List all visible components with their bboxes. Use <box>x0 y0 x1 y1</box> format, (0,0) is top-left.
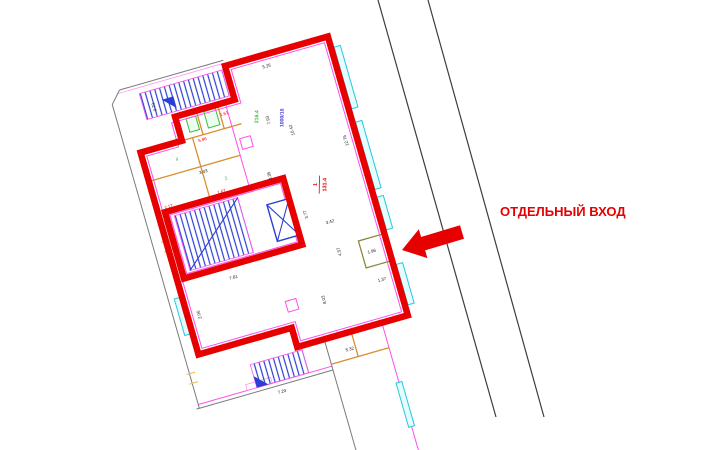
building-plan: 5.25 7.93 10.42 12.76 5.86 3.03 2.17 1.6… <box>106 28 455 450</box>
dim-label: 1.37 <box>377 276 387 283</box>
unit-number-label: 1 <box>313 183 319 186</box>
dim-label: 1.96 <box>367 247 377 254</box>
separate-entrance-label: ОТДЕЛЬНЫЙ ВХОД <box>500 204 626 219</box>
dim-label: 7.93 <box>264 115 271 125</box>
dim-label: 4.57 <box>335 246 342 256</box>
unit-area-fraction: 1 131.4 <box>313 175 329 193</box>
dim-label: 8.03 <box>320 294 327 304</box>
unit-area-label: 131.4 <box>322 178 328 192</box>
dim-label: 2.06 <box>195 309 202 319</box>
dim-label: 12.76 <box>342 134 350 146</box>
dim-label: 3.03 <box>198 168 208 175</box>
room-number: 4 <box>175 157 180 164</box>
area-labels: 216.4 1000/16 1 131.4 <box>251 95 334 208</box>
area-label-green: 216.4 <box>254 110 260 123</box>
dim-label: 7.81 <box>229 274 239 281</box>
dim-label: 7.20 <box>277 388 287 395</box>
dim-label: 5.32 <box>345 345 355 352</box>
wing-window <box>396 381 414 427</box>
dim-label: 3.42 <box>325 218 335 225</box>
entrance-steps-bottom <box>250 350 309 388</box>
survey-tick <box>187 372 196 374</box>
plan-canvas: 5.25 7.93 10.42 12.76 5.86 3.03 2.17 1.6… <box>0 0 702 450</box>
survey-tick <box>189 382 198 384</box>
dim-label: 3.35 <box>266 171 273 181</box>
dim-label: 5.25 <box>262 62 272 69</box>
dim-label: 5.86 <box>198 136 208 143</box>
outer-wall-chamfer <box>109 90 123 105</box>
dim-label: 3.77 <box>302 209 309 219</box>
column <box>240 136 254 150</box>
wing-partition <box>331 348 389 365</box>
entrance-arrow <box>402 225 464 258</box>
dim-label: 10.42 <box>288 124 296 136</box>
room-number: 2 <box>224 176 229 183</box>
road-line-left <box>378 0 496 417</box>
central-stair-block <box>170 182 301 273</box>
lower-wing <box>325 324 424 450</box>
floor-plan-screenshot: 5.25 7.93 10.42 12.76 5.86 3.03 2.17 1.6… <box>0 0 702 450</box>
column <box>285 298 299 312</box>
area-label-blue: 1000/16 <box>279 108 285 127</box>
